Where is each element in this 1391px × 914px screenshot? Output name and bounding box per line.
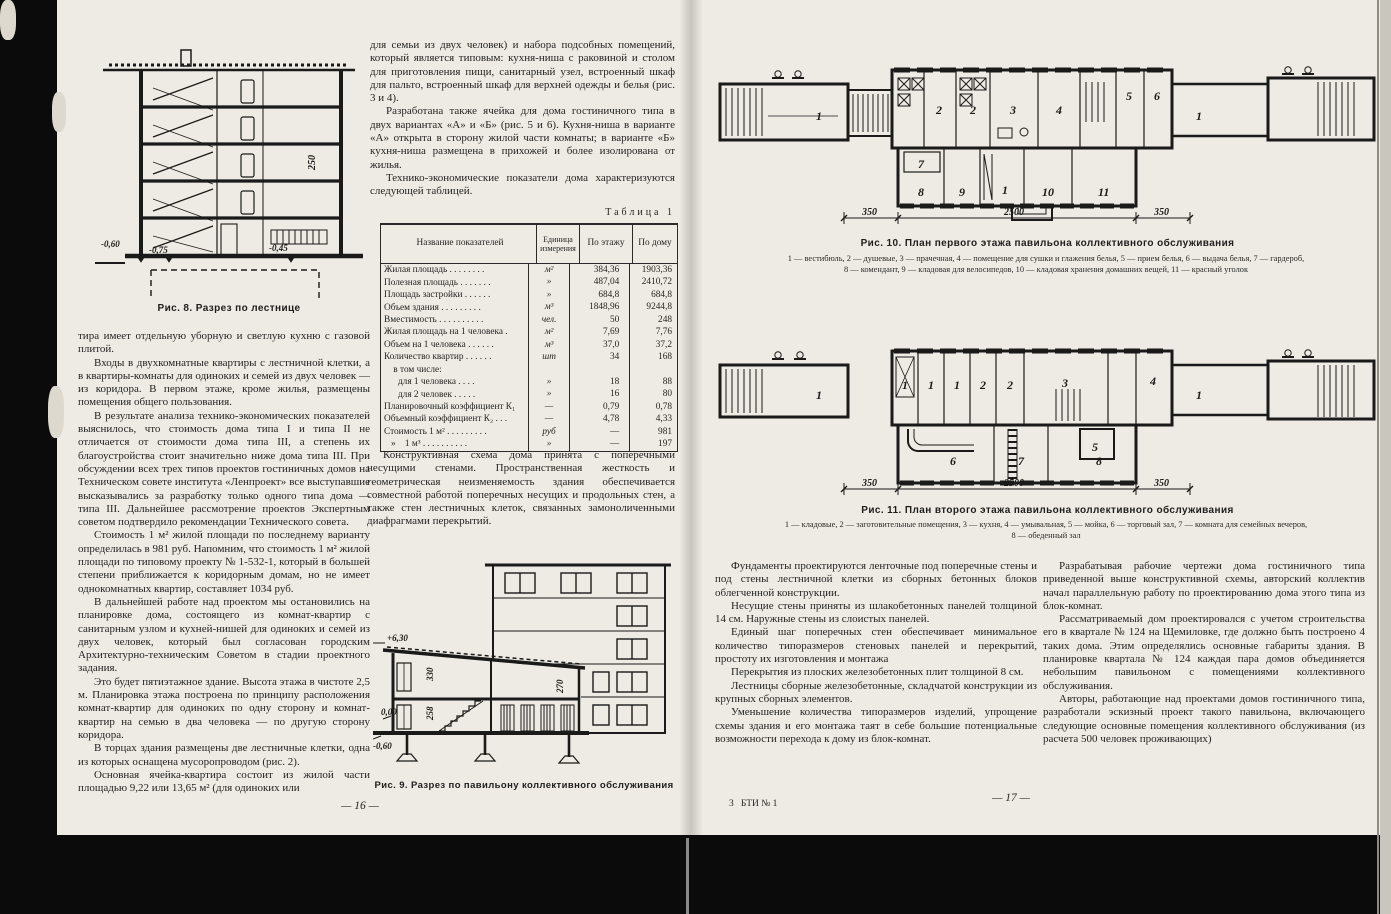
room-label: 1 <box>1196 388 1202 402</box>
paragraph: Уменьшение количества типоразмеров издел… <box>715 706 1037 746</box>
dimension-label: 270 <box>555 679 565 694</box>
table-cell-floor: 487,04 <box>569 276 629 288</box>
table-header-cell: По дому <box>632 225 677 263</box>
table-cell-unit <box>528 364 569 376</box>
table-cell-name: Планировочный коэффициент К₁ <box>381 402 528 412</box>
table-row: Количество квартир . . . . . . шт 34 168 <box>381 351 677 363</box>
figure-11-legend-line2: 8 — обеденный зал <box>701 530 1391 541</box>
paragraph: тира имеет отдельную уборную и светлую к… <box>78 330 370 357</box>
level-mark: +6,30 <box>387 633 408 643</box>
table-cell-floor: 684,8 <box>569 289 629 301</box>
figure-11-caption: Рис. 11. План второго этажа павильона ко… <box>715 505 1380 516</box>
table-row: Жилая площадь . . . . . . . . м² 384,36 … <box>381 264 677 276</box>
table-cell-house: 4,33 <box>629 413 677 425</box>
page-17: 1 2 2 3 4 5 6 7 8 9 1 10 11 1 350 2500 3… <box>691 0 1380 835</box>
table-cell-unit: м³ <box>528 339 569 351</box>
figure-9-caption: Рис. 9. Разрез по павильону коллективног… <box>373 780 675 791</box>
table-cell-house: 248 <box>629 314 677 326</box>
page-number-16: — 16 — <box>280 800 440 812</box>
left-column-text: тира имеет отдельную уборную и светлую к… <box>78 330 370 795</box>
table-cell-name: Вместимость . . . . . . . . . . <box>381 315 528 325</box>
table-header-cell: Единица измерения <box>536 225 579 263</box>
table-cell-name: Стоимость 1 м² . . . . . . . . . <box>381 427 528 437</box>
scan-bottom-black-band <box>0 835 1391 914</box>
paragraph: Технико-экономические показатели дома ха… <box>370 172 675 199</box>
table-cell-unit: — <box>528 413 569 425</box>
table-cell-name: Объем на 1 человека . . . . . . <box>381 340 528 350</box>
room-label: 1 <box>1002 183 1008 197</box>
room-label: 11 <box>1098 185 1109 199</box>
table-cell-house: 88 <box>629 376 677 388</box>
table-1: Название показателей Единица измерения П… <box>380 223 678 452</box>
paragraph: Авторы, работающие над проектами домов г… <box>1043 693 1365 746</box>
room-label: 6 <box>950 454 956 468</box>
table-cell-unit: » <box>528 289 569 301</box>
paragraph: Входы в двухкомнатные квартиры с лестнич… <box>78 357 370 410</box>
table-cell-floor: 7,69 <box>569 326 629 338</box>
paragraph: Перекрытия из плоских железобетонных пли… <box>715 666 1037 679</box>
table-header-cell: Название показателей <box>381 225 536 263</box>
room-label: 7 <box>918 157 925 171</box>
room-label: 2 <box>969 103 976 117</box>
level-mark: -0,60 <box>101 239 120 249</box>
paragraph: Разработана также ячейка для дома гостин… <box>370 105 675 171</box>
right-page-column-2: Разрабатывая рабочие чертежи дома гостин… <box>1043 560 1365 746</box>
paragraph: для семьи из двух человек) и набора подс… <box>370 39 675 105</box>
table-row: Площадь застройки . . . . . . » 684,8 68… <box>381 289 677 301</box>
room-label: 1 <box>928 378 934 392</box>
table-cell-name: Объем здания . . . . . . . . . <box>381 303 528 313</box>
table-cell-unit: м³ <box>528 301 569 313</box>
table-cell-house: 168 <box>629 351 677 363</box>
room-label: 6 <box>1154 89 1160 103</box>
table-cell-house <box>629 364 677 376</box>
table-cell-floor: 0,79 <box>569 401 629 413</box>
figure-10-caption: Рис. 10. План первого этажа павильона ко… <box>715 238 1380 249</box>
dimension-label: 350 <box>1153 207 1169 218</box>
table-cell-house: 981 <box>629 426 677 438</box>
scan-right-edge-strip <box>1380 0 1391 914</box>
room-label: 3 <box>1009 103 1016 117</box>
table-cell-house: 7,76 <box>629 326 677 338</box>
page-number-17: — 17 — <box>931 792 1091 804</box>
dimension-label: 258 <box>425 706 435 721</box>
paragraph: В дальнейшей работе над проектом мы оста… <box>78 596 370 676</box>
figure-10-plan-drawing: 1 2 2 3 4 5 6 7 8 9 1 10 11 1 350 2500 3… <box>712 32 1382 228</box>
table-label: Таблица 1 <box>370 207 681 218</box>
scan-right-edge-line <box>1377 0 1379 914</box>
table-cell-unit: » <box>528 276 569 288</box>
table-row: Стоимость 1 м² . . . . . . . . . руб — 9… <box>381 426 677 438</box>
room-label: 3 <box>1061 376 1068 390</box>
page-16: -0,60 -0,75 -0,45 250 Рис. 8. Разрез по … <box>0 0 691 835</box>
room-label: 5 <box>1092 440 1098 454</box>
table-row: в том числе: <box>381 364 677 376</box>
table-cell-floor: 37,0 <box>569 339 629 351</box>
print-signature: 3 БТИ № 1 <box>729 799 777 809</box>
table-cell-floor: 4,78 <box>569 413 629 425</box>
room-label: 2 <box>935 103 942 117</box>
dimension-label: 2500 <box>1003 478 1024 489</box>
table-cell-name: Жилая площадь . . . . . . . . <box>381 265 528 275</box>
table-cell-name: Объемный коэффициент К₂ . . . <box>381 414 528 424</box>
room-label: 1 <box>816 109 822 123</box>
room-label: 5 <box>1126 89 1132 103</box>
table-row: Объемный коэффициент К₂ . . . — 4,78 4,3… <box>381 413 677 425</box>
table-header-cell: По этажу <box>579 225 632 263</box>
table-cell-name: Жилая площадь на 1 человека . <box>381 327 528 337</box>
room-label: 2 <box>1006 378 1013 392</box>
room-label: 1 <box>902 378 908 392</box>
paragraph: Лестницы сборные железобетонные, складча… <box>715 680 1037 707</box>
paragraph: Это будет пятиэтажное здание. Высота эта… <box>78 676 370 742</box>
figure-8-section-drawing: -0,60 -0,75 -0,45 250 <box>95 40 363 298</box>
level-mark: 0,00 <box>381 707 397 717</box>
table-cell-house: 0,78 <box>629 401 677 413</box>
table-cell-house: 80 <box>629 388 677 400</box>
table-body: Жилая площадь . . . . . . . . м² 384,36 … <box>381 264 677 451</box>
table-row: для 2 человек . . . . . » 16 80 <box>381 388 677 400</box>
dimension-label: 330 <box>425 667 435 682</box>
table-cell-unit: » <box>528 388 569 400</box>
paragraph: Основная ячейка-квартира состоит из жило… <box>78 769 370 796</box>
figure-11-legend-line1: 1 — кладовые, 2 — заготовительные помеще… <box>701 519 1391 530</box>
right-column-after-table-text: Конструктивная схема дома принята с попе… <box>367 449 675 529</box>
right-page-column-1: Фундаменты проектируются ленточные под п… <box>715 560 1037 746</box>
table-cell-unit: м² <box>528 264 569 276</box>
table-cell-name: » 1 м³ . . . . . . . . . . <box>381 439 528 449</box>
table-cell-unit: м² <box>528 326 569 338</box>
paragraph: Несущие стены приняты из шлакобетонных п… <box>715 600 1037 627</box>
table-row: Объем здания . . . . . . . . . м³ 1848,9… <box>381 301 677 313</box>
table-cell-floor: 16 <box>569 388 629 400</box>
room-label: 8 <box>1096 454 1102 468</box>
table-row: Планировочный коэффициент К₁ — 0,79 0,78 <box>381 401 677 413</box>
table-cell-floor: — <box>569 426 629 438</box>
table-cell-name: Площадь застройки . . . . . . <box>381 290 528 300</box>
table-row: Вместимость . . . . . . . . . . чел. 50 … <box>381 314 677 326</box>
figure-9-section-drawing: +6,30 0,00 -0,60 330 270 258 <box>373 553 675 771</box>
paragraph: Рассматриваемый дом проектировался с уче… <box>1043 613 1365 693</box>
table-cell-house: 684,8 <box>629 289 677 301</box>
table-cell-unit: шт <box>528 351 569 363</box>
table-cell-floor: 34 <box>569 351 629 363</box>
table-cell-floor: 384,36 <box>569 264 629 276</box>
room-label: 2 <box>979 378 986 392</box>
room-label: 1 <box>816 388 822 402</box>
level-mark: -0,75 <box>149 245 168 255</box>
room-label: 10 <box>1042 185 1054 199</box>
table-cell-floor: 18 <box>569 376 629 388</box>
scan-gutter-line <box>686 838 689 914</box>
room-label: 8 <box>918 185 924 199</box>
scanned-spread: -0,60 -0,75 -0,45 250 Рис. 8. Разрез по … <box>0 0 1391 914</box>
table-row: Объем на 1 человека . . . . . . м³ 37,0 … <box>381 339 677 351</box>
table-cell-floor: 1848,96 <box>569 301 629 313</box>
figure-10-legend-line2: 8 — комендант, 9 — кладовая для велосипе… <box>701 264 1391 275</box>
dimension-label: 350 <box>861 207 877 218</box>
right-column-top-text: для семьи из двух человек) и набора подс… <box>370 39 675 199</box>
table-cell-unit: чел. <box>528 314 569 326</box>
paragraph: Разрабатывая рабочие чертежи дома гостин… <box>1043 560 1365 613</box>
table-header-row: Название показателей Единица измерения П… <box>381 225 677 264</box>
room-label: 9 <box>959 185 965 199</box>
table-cell-floor <box>569 364 629 376</box>
table-cell-name: для 2 человек . . . . . <box>381 390 528 400</box>
room-label: 7 <box>1018 454 1025 468</box>
dimension-label: 350 <box>1153 478 1169 489</box>
paragraph: Стоимость 1 м² жилой площади по последне… <box>78 529 370 595</box>
table-cell-house: 2410,72 <box>629 276 677 288</box>
paragraph: В результате анализа технико-экономическ… <box>78 410 370 530</box>
dimension-label: 2500 <box>1003 207 1024 218</box>
table-cell-floor: 50 <box>569 314 629 326</box>
room-label: 1 <box>954 378 960 392</box>
figure-11-plan-drawing: 1 1 1 1 2 2 3 4 5 6 7 8 1 350 2500 350 <box>712 325 1382 497</box>
table-cell-unit: » <box>528 376 569 388</box>
dimension-label: 350 <box>861 478 877 489</box>
table-cell-house: 1903,36 <box>629 264 677 276</box>
room-label: 4 <box>1149 374 1156 388</box>
table-row: для 1 человека . . . . » 18 88 <box>381 376 677 388</box>
table-cell-name: в том числе: <box>381 365 528 375</box>
level-mark: -0,60 <box>373 741 392 751</box>
level-mark: -0,45 <box>269 243 288 253</box>
table-row: Полезная площадь . . . . . . . » 487,04 … <box>381 276 677 288</box>
table-cell-name: Количество квартир . . . . . . <box>381 352 528 362</box>
table-cell-unit: — <box>528 401 569 413</box>
paragraph: Конструктивная схема дома принята с попе… <box>367 449 675 529</box>
paragraph: Единый шаг поперечных стен обеспечивает … <box>715 626 1037 666</box>
dimension-label: 250 <box>307 155 318 171</box>
paragraph: В торцах здания размещены две лестничные… <box>78 742 370 769</box>
table-cell-name: для 1 человека . . . . <box>381 377 528 387</box>
table-cell-house: 9244,8 <box>629 301 677 313</box>
figure-10-legend-line1: 1 — вестибюль, 2 — душевые, 3 — прачечна… <box>701 253 1391 264</box>
table-row: Жилая площадь на 1 человека . м² 7,69 7,… <box>381 326 677 338</box>
room-label: 1 <box>1196 109 1202 123</box>
room-label: 4 <box>1055 103 1062 117</box>
table-cell-name: Полезная площадь . . . . . . . <box>381 278 528 288</box>
paragraph: Фундаменты проектируются ленточные под п… <box>715 560 1037 600</box>
figure-8-caption: Рис. 8. Разрез по лестнице <box>95 303 363 314</box>
table-cell-unit: руб <box>528 426 569 438</box>
table-cell-house: 37,2 <box>629 339 677 351</box>
